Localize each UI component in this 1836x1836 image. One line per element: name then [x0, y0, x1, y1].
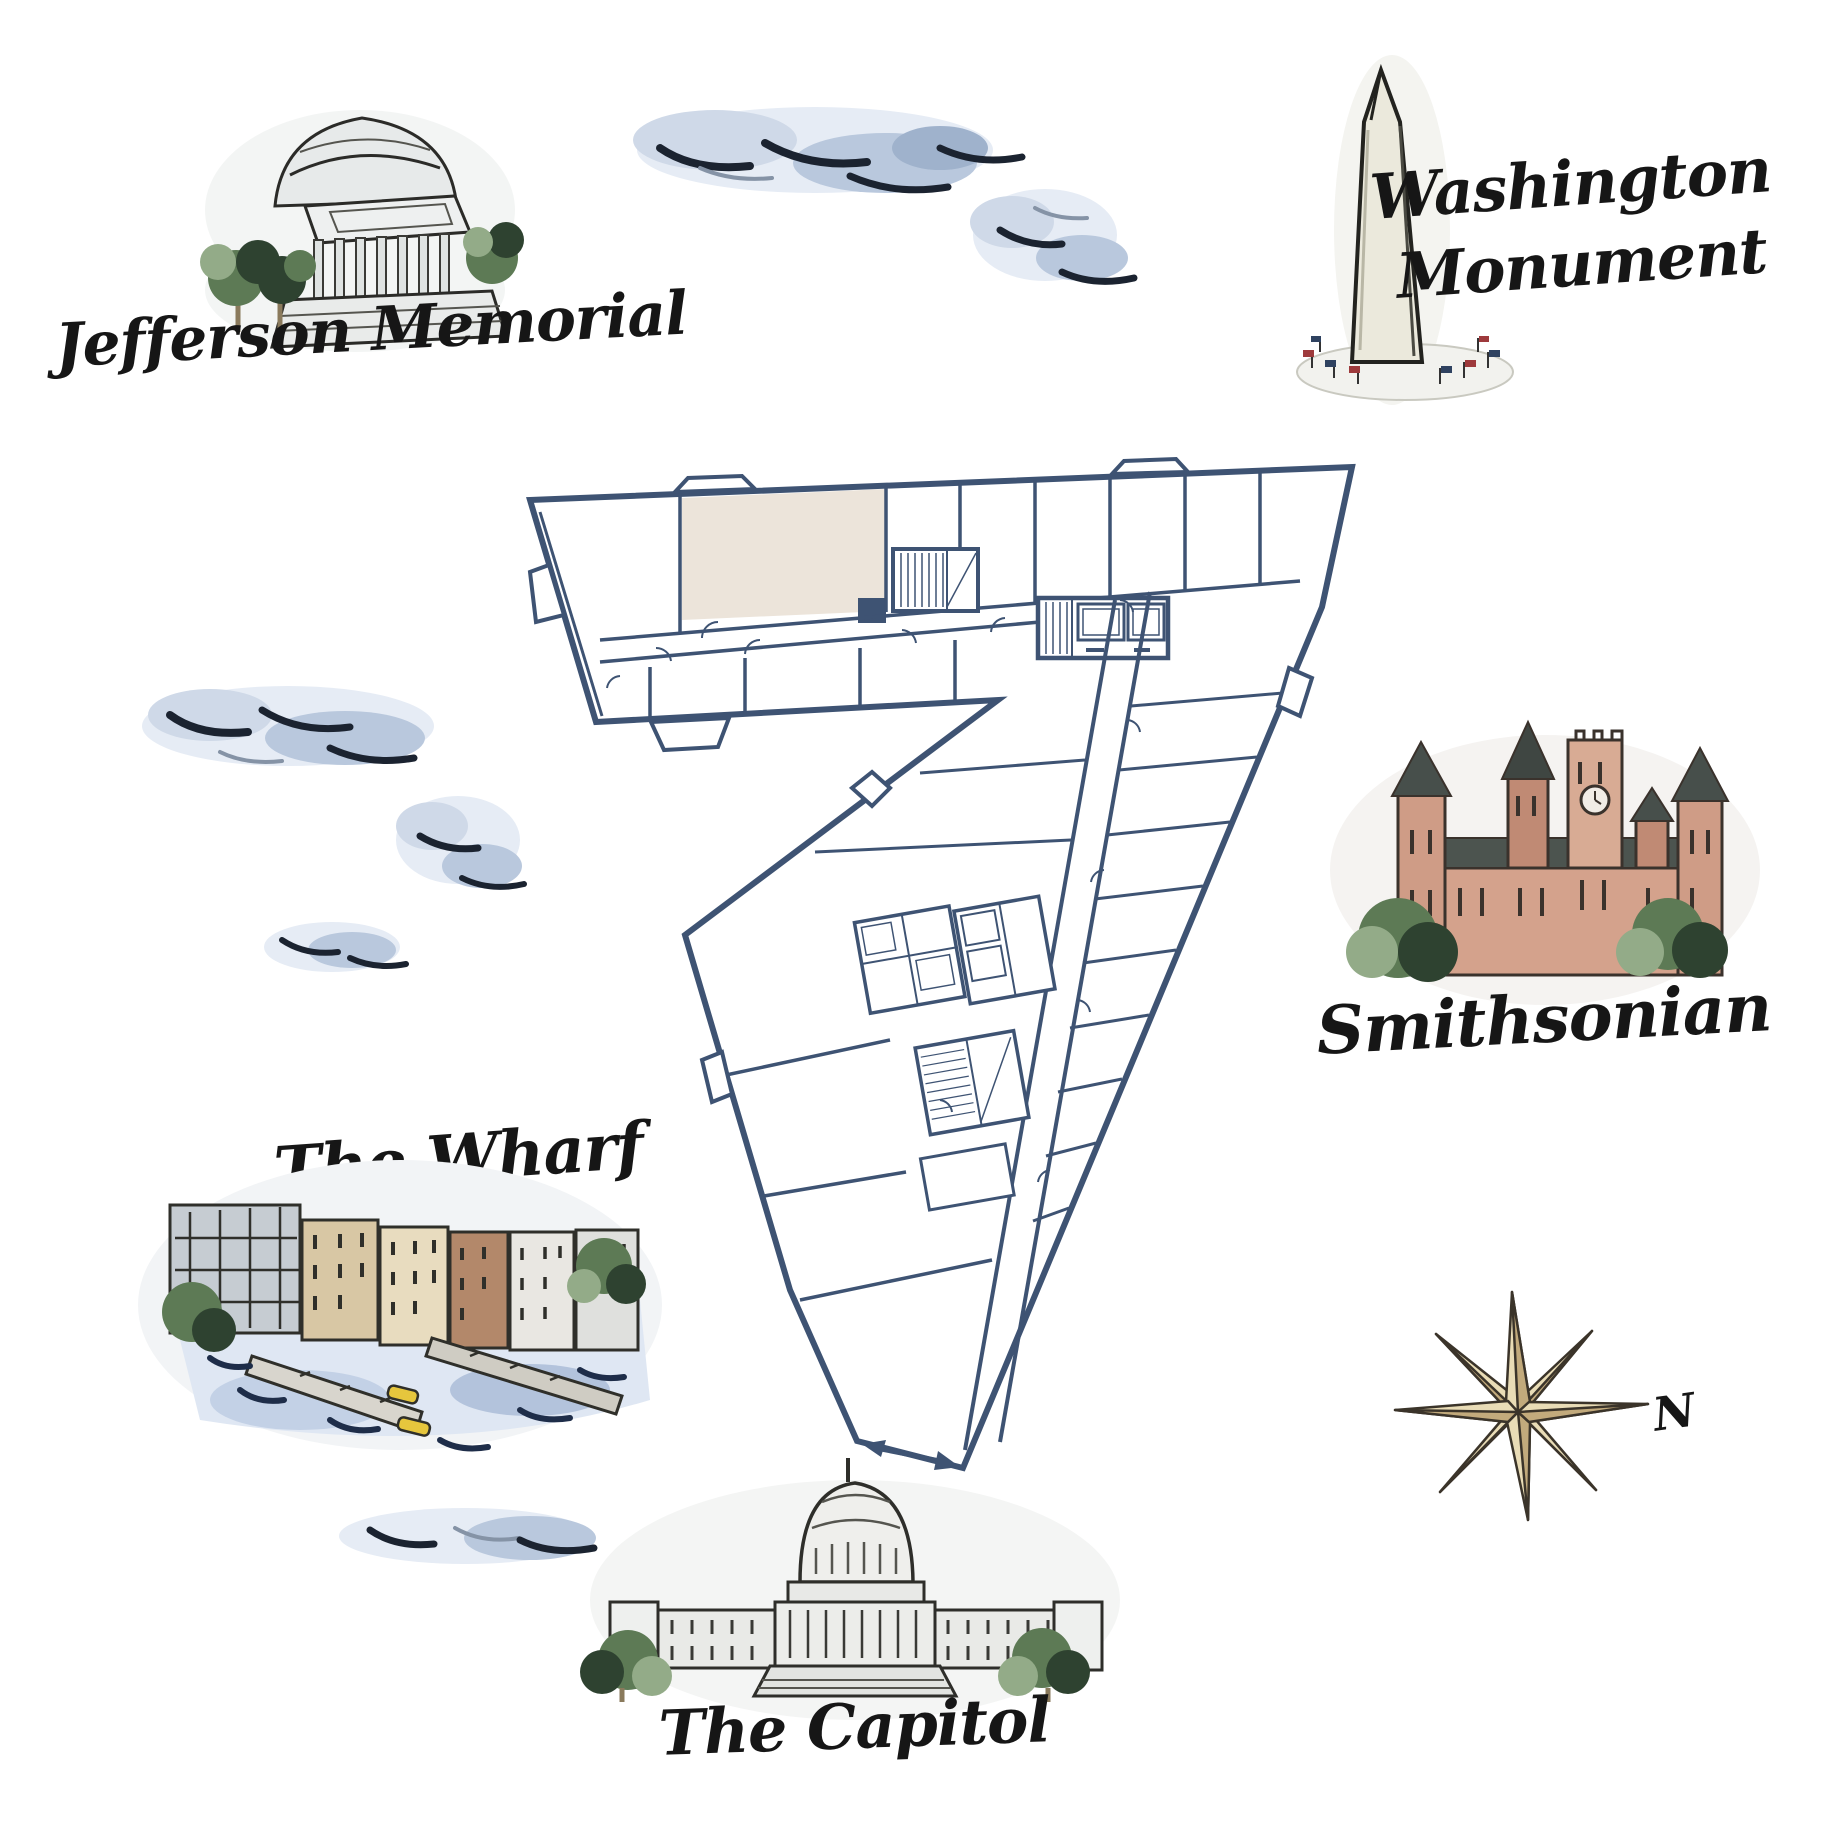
cloud-left-small: [396, 796, 524, 888]
capitol-label: The Capitol: [657, 1683, 1051, 1770]
wharf-illustration: [138, 1160, 662, 1450]
compass-north-label: N: [1648, 1382, 1701, 1442]
jefferson-columns: [314, 234, 449, 300]
capitol-illustration: [580, 1458, 1120, 1720]
cloud-bottom-left: [339, 1508, 596, 1564]
tip-arrow: [862, 1440, 960, 1470]
dc-map-canvas: Jefferson Memorial Washington Monument: [0, 0, 1836, 1836]
cloud-top-center: [633, 107, 1022, 193]
map-artwork: Jefferson Memorial Washington Monument: [0, 0, 1836, 1836]
cloud-top-right: [970, 189, 1134, 281]
smithsonian-label: Smithsonian: [1315, 968, 1773, 1070]
east-room-dividers: [1033, 693, 1283, 1221]
cloud-left-tiny: [264, 922, 406, 972]
highlighted-suite[interactable]: [682, 489, 886, 620]
cloud-left-large: [142, 686, 434, 766]
smithsonian-illustration: [1330, 722, 1760, 1005]
diagonal-corridor-east: [1000, 592, 1150, 1442]
corridor-bottom-wall: [600, 622, 1040, 662]
stair-core-top: [893, 549, 978, 611]
compass-rose: [1395, 1292, 1648, 1520]
